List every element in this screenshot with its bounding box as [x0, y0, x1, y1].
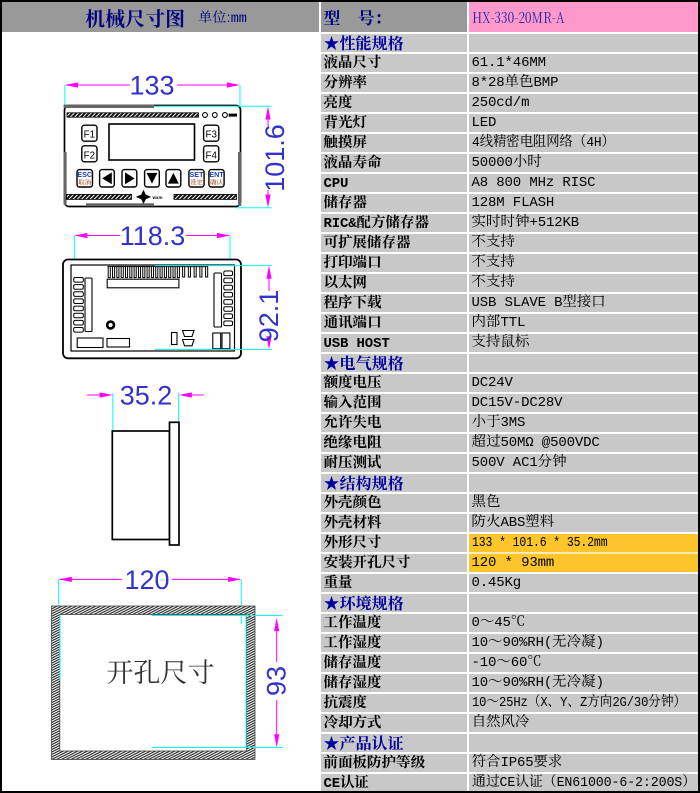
svg-text:120: 120: [124, 565, 169, 595]
svg-text:133: 133: [129, 71, 174, 101]
svg-text:F1: F1: [84, 130, 95, 141]
svg-text:F3: F3: [205, 130, 217, 141]
svg-text:wxm: wxm: [152, 195, 163, 200]
svg-text:118.3: 118.3: [120, 221, 186, 251]
svg-text:35.2: 35.2: [120, 381, 173, 411]
svg-text:F4: F4: [205, 150, 217, 161]
svg-text:取消: 取消: [78, 176, 92, 186]
svg-text:93: 93: [262, 666, 292, 696]
svg-text:确认: 确认: [210, 176, 224, 186]
svg-text:F2: F2: [84, 150, 95, 161]
svg-text:设定: 设定: [190, 176, 204, 186]
svg-text:101.6: 101.6: [260, 124, 290, 192]
svg-text:92.1: 92.1: [254, 290, 284, 343]
svg-text:开孔尺寸: 开孔尺寸: [107, 651, 215, 690]
